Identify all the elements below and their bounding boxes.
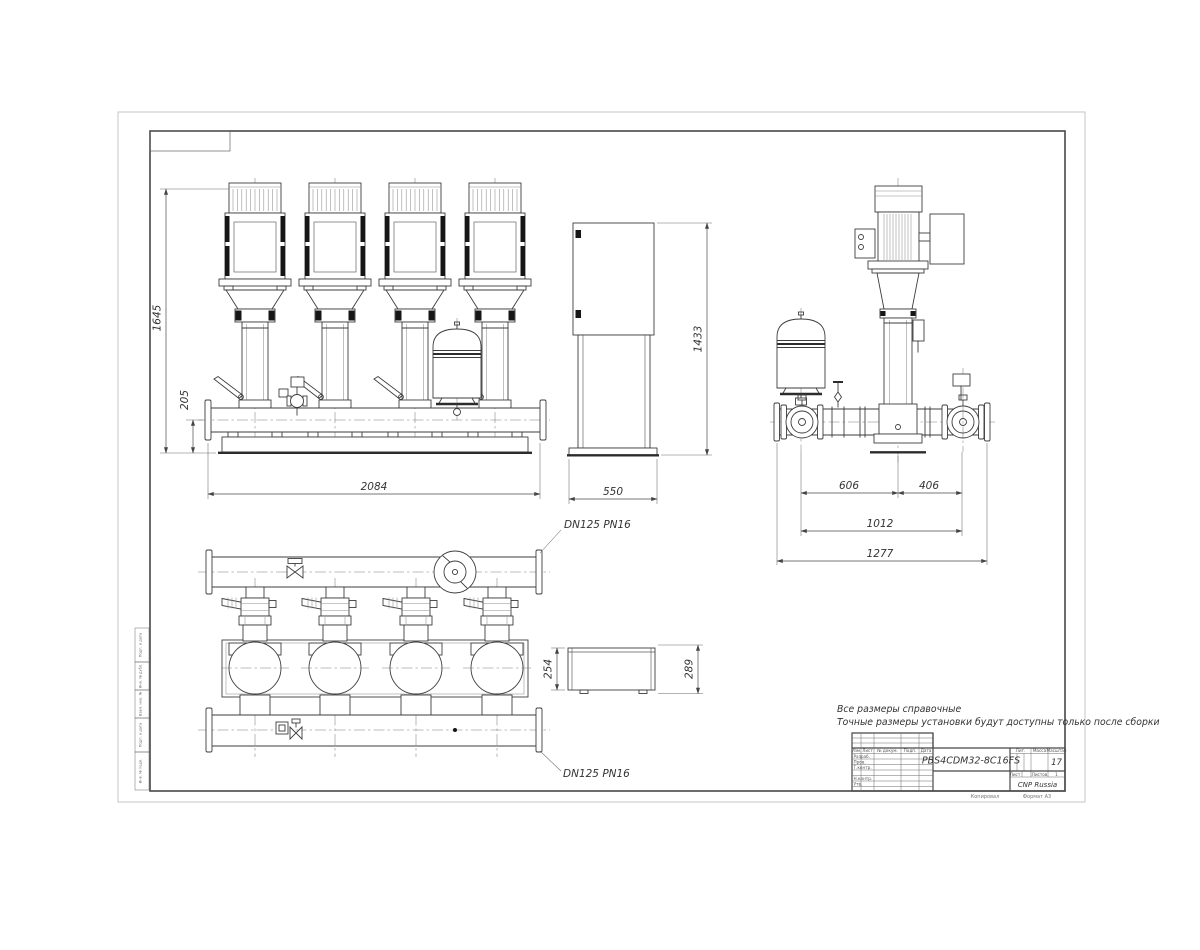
dim-cabinet-height: 1433 bbox=[693, 326, 705, 353]
tb-header-mass: Масса bbox=[1033, 748, 1047, 753]
cabinet-view: 1433 550 bbox=[567, 223, 712, 504]
border-stamp-label: Инв. № подл. bbox=[139, 759, 143, 784]
cabinet-hinge bbox=[576, 230, 582, 238]
front-view: 1645 205 2084 bbox=[152, 178, 551, 499]
pump-front-3 bbox=[374, 178, 451, 438]
cabinet-hinge bbox=[576, 310, 582, 318]
dim-cabinet-top-width: 289 bbox=[684, 659, 696, 679]
control-module bbox=[930, 214, 964, 264]
dim-side-valves: 1012 bbox=[867, 518, 894, 530]
dn-label-bottom: DN125 PN16 bbox=[540, 751, 630, 780]
dim-side-left: 606 bbox=[839, 480, 859, 492]
side-view-dimensions: 606 406 1012 1277 bbox=[777, 443, 987, 565]
engineering-drawing: Подп. и дата Инв. № дубл. Взам. инв. № П… bbox=[0, 0, 1200, 950]
plan-view: DN125 PN16 DN125 PN16 bbox=[198, 519, 631, 780]
tb-row-tcontrol: Т.контр. bbox=[853, 765, 872, 770]
border-stamp-label: Взам. инв. № bbox=[139, 692, 143, 717]
membrane-tank-front bbox=[433, 318, 481, 420]
top-left-stamp-box bbox=[150, 131, 230, 151]
tb-designation: PBS4CDM32-8C16FS bbox=[922, 756, 1020, 767]
dim-front-height: 1645 bbox=[152, 304, 164, 331]
tb-row-approved: Утв. bbox=[854, 782, 863, 787]
base-frame bbox=[218, 432, 532, 453]
border-stamp-label: Подп. и дата bbox=[139, 723, 143, 747]
plan-bottom-valve bbox=[276, 719, 302, 739]
dn-label-top: DN125 PN16 bbox=[540, 519, 631, 553]
tb-row-ncontrol: Н.контр. bbox=[854, 776, 873, 781]
note-line-1: Все размеры справочные bbox=[837, 704, 962, 715]
tb-scale-value: 17 bbox=[1051, 758, 1062, 768]
side-view: 606 406 1012 1277 bbox=[770, 178, 995, 565]
tb-copied-label: Копировал bbox=[971, 794, 1000, 800]
border-stamp-label: Инв. № дубл. bbox=[139, 664, 143, 689]
tb-row-developed: Разраб. bbox=[854, 754, 870, 759]
dim-manifold-height: 205 bbox=[179, 390, 191, 410]
tb-format-label: Формат А3 bbox=[1023, 794, 1051, 800]
pump-front-1 bbox=[214, 178, 291, 438]
tb-row-checked: Пров. bbox=[854, 760, 866, 765]
border-stamp-column: Подп. и дата Инв. № дубл. Взам. инв. № П… bbox=[135, 628, 149, 790]
dn-top-text: DN125 PN16 bbox=[564, 519, 631, 531]
dim-front-width: 2084 bbox=[361, 481, 388, 493]
pump-front-4 bbox=[454, 178, 531, 438]
tb-header-lit: Лит. bbox=[1016, 748, 1026, 753]
plan-tank bbox=[434, 551, 476, 593]
valve-actuator-right bbox=[953, 374, 970, 400]
terminal-box bbox=[855, 229, 875, 258]
tb-col-sign: Подп. bbox=[904, 748, 917, 753]
note-line-2: Точные размеры установки будут доступны … bbox=[837, 717, 1160, 728]
tb-col-date: Дата bbox=[921, 748, 932, 753]
tb-sheets-label: Листов bbox=[1032, 772, 1048, 777]
dn-bottom-text: DN125 PN16 bbox=[563, 768, 630, 780]
notes: Все размеры справочные Точные размеры ус… bbox=[837, 704, 1160, 728]
tb-sheets-value: 1 bbox=[1055, 772, 1058, 777]
dim-side-right: 406 bbox=[919, 480, 939, 492]
dim-cabinet-depth: 254 bbox=[543, 659, 555, 679]
border-stamp-label: Подп. и дата bbox=[139, 633, 143, 657]
valve-assembly-front bbox=[279, 377, 307, 415]
tb-header-scale: Масштаб bbox=[1047, 748, 1067, 753]
dim-cabinet-width: 550 bbox=[603, 486, 623, 498]
cabinet-top-view: 254 289 bbox=[543, 645, 704, 694]
tb-col-list: Лист bbox=[862, 748, 873, 753]
title-block: Изм. Лист № докум. Подп. Дата Разраб. Пр… bbox=[852, 733, 1067, 800]
butterfly-valve-left bbox=[781, 395, 823, 439]
drawing-page: Подп. и дата Инв. № дубл. Взам. инв. № П… bbox=[0, 0, 1200, 950]
tb-company: CNP Russia bbox=[1018, 781, 1057, 789]
tb-col-izm: Изм. bbox=[852, 748, 862, 753]
plan-top-valve bbox=[287, 559, 303, 579]
tb-sheet-label: Лист bbox=[1010, 772, 1021, 777]
dim-side-total: 1277 bbox=[867, 548, 894, 560]
drain-valve-left bbox=[833, 382, 843, 407]
plan-bottom-manifold bbox=[198, 708, 550, 752]
tb-col-doc: № докум. bbox=[877, 748, 898, 753]
